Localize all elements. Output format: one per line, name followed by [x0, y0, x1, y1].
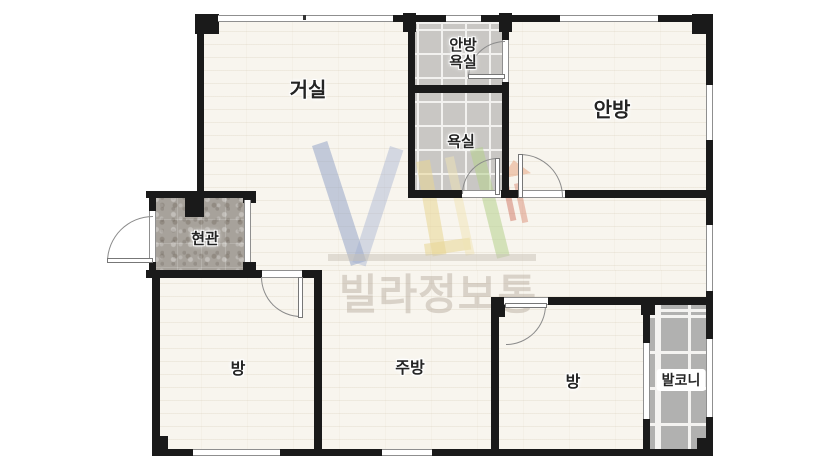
corner-living-entrance	[185, 195, 204, 217]
floor-plan: 빌라정보통	[0, 0, 840, 472]
wall-bathblock-left	[408, 15, 415, 198]
bedroomright-door-panel	[505, 303, 547, 308]
window-balcony-right	[706, 339, 713, 417]
room-label-master-bedroom: 안방	[594, 94, 631, 123]
corner-bath-right-top	[499, 13, 512, 32]
room-label-kitchen: 주방	[395, 354, 424, 378]
masterbedroom-door-panel	[518, 154, 523, 198]
wall-bedroomleft-kitchen	[314, 270, 322, 456]
window-masterbath-top	[446, 15, 481, 22]
window-balcony-left	[643, 343, 650, 419]
corner-bath-left-top	[403, 13, 416, 32]
room-label-bedroom-left: 방	[231, 355, 246, 379]
room-label-bedroom-right: 방	[566, 368, 581, 392]
corner-top-right	[692, 14, 713, 34]
window-living-divider	[303, 15, 306, 20]
wall-living-left	[197, 15, 204, 198]
watermark-underline	[328, 254, 536, 261]
window-masterbedroom-right	[706, 85, 713, 140]
wall-bedroomright-left	[491, 297, 499, 456]
corner-top-left	[195, 14, 219, 34]
room-label-bathroom: 욕실	[447, 131, 475, 152]
wall-bathroom-divider	[408, 85, 509, 93]
corner-hallwall-left	[491, 297, 505, 317]
opening-entrance-hall	[244, 200, 251, 262]
masterbath-door-panel	[468, 74, 505, 79]
corner-entrance-right-bottom	[243, 262, 256, 278]
room-label-living: 거실	[290, 74, 327, 103]
bathroom-door-panel	[495, 158, 500, 195]
room-label-master-bathroom: 안방 욕실	[449, 38, 477, 72]
window-hall-right	[706, 225, 713, 291]
corner-bottom-left	[152, 436, 168, 456]
corner-balcony-top-left	[641, 297, 655, 315]
wall-bedroomleft-left	[152, 270, 160, 456]
bedroomleft-door-panel	[298, 277, 303, 318]
corner-bottom-right	[697, 438, 713, 456]
window-kitchen-bottom	[382, 449, 432, 456]
room-label-entrance: 현관	[191, 228, 219, 249]
entrance-door-panel	[107, 258, 153, 263]
window-masterbedroom-top	[560, 15, 658, 22]
entrance-door-arc	[107, 216, 153, 262]
window-bedroomleft-bottom	[193, 449, 280, 456]
room-label-balcony: 발코니	[657, 369, 706, 391]
